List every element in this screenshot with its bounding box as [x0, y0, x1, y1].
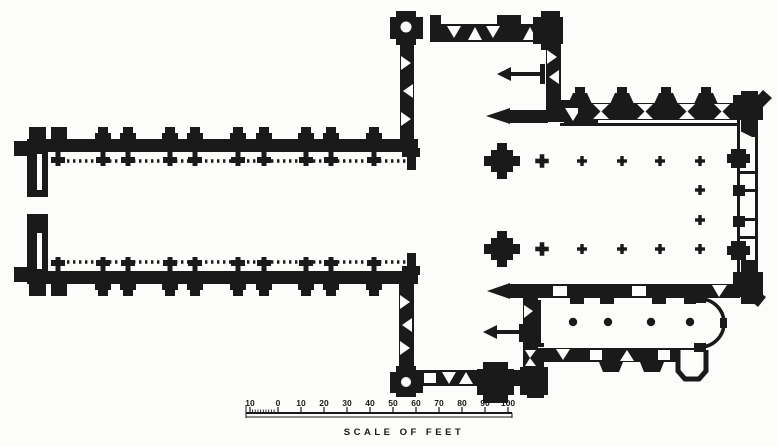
chapel-column: [569, 318, 577, 326]
choir-column: [697, 187, 702, 192]
northwest-stair-turret: [390, 11, 423, 45]
scale-bar: 100102030405060708090100 SCALE OF FEET: [245, 398, 515, 438]
chapel-column: [647, 318, 655, 326]
scale-tick-label: 10: [245, 398, 255, 408]
wall-pier: [257, 260, 271, 266]
scale-tick-label: 40: [365, 398, 375, 408]
south-transept: [390, 284, 548, 403]
south-transept-shape: [477, 369, 514, 395]
wall-pier: [188, 260, 202, 266]
scale-tick-labels: 100102030405060708090100: [245, 398, 515, 408]
apse-respond: [694, 343, 706, 352]
nave-buttress: [95, 127, 111, 141]
altar-mark-arrowhead: [483, 325, 497, 339]
nave-east-pier-north: [407, 143, 416, 170]
nave-south-wall-piers: [51, 257, 381, 273]
nave-buttress: [95, 282, 111, 296]
nave-buttress: [120, 127, 136, 141]
choir-column: [579, 246, 584, 251]
west-wall-passage-north: [37, 154, 42, 190]
choir-column: [657, 246, 662, 251]
nave: [14, 127, 420, 296]
choir-column: [697, 217, 702, 222]
chapel-column: [686, 318, 694, 326]
choir-buttress: [701, 87, 711, 94]
wall-pier: [163, 260, 177, 266]
choir-column: [697, 158, 702, 163]
wall-opening: [632, 286, 646, 296]
crossing-piers: [484, 143, 520, 267]
scale-tick-label: 0: [276, 398, 281, 408]
nave-shape: [29, 283, 46, 296]
north-transept: [430, 11, 598, 124]
choir-column: [697, 246, 702, 251]
south-chapel: [523, 294, 727, 379]
east-window-transom: [737, 236, 758, 239]
nave-buttress: [323, 127, 339, 141]
nave-buttress: [323, 282, 339, 296]
nave-south-buttresses: [95, 282, 382, 296]
choir-buttress: [661, 87, 671, 94]
crossing-pier: [484, 156, 520, 166]
wall-pier: [188, 157, 202, 163]
crossing-pier: [506, 253, 513, 260]
nave-shape: [51, 127, 67, 140]
west-doorway: [25, 197, 50, 214]
east-window-wall-shape: [727, 154, 750, 163]
choir-column: [579, 158, 584, 163]
nave-buttress: [187, 127, 203, 141]
altar-mark-arrowhead: [486, 108, 510, 124]
choir-buttress: [568, 93, 592, 104]
chapel-buttress: [599, 362, 623, 372]
altar-mark-stem: [495, 330, 523, 334]
crossing-pier: [484, 244, 520, 254]
sacristy-annexe: [678, 350, 706, 379]
wall-pier: [600, 296, 614, 304]
east-wall-pier: [733, 216, 745, 227]
chapel-column: [604, 318, 612, 326]
wall-pier: [96, 157, 110, 163]
nave-buttress: [366, 282, 382, 296]
scale-tick-label: 70: [434, 398, 444, 408]
nave-north-wall-piers: [51, 150, 381, 166]
choir-buttress: [575, 87, 585, 94]
crossing-pier: [491, 253, 498, 260]
north-transept-shape: [497, 15, 521, 26]
scale-tick-label: 20: [319, 398, 329, 408]
east-window-transom: [737, 171, 758, 174]
wall-pier: [231, 260, 245, 266]
wall-pier: [299, 260, 313, 266]
choir-buttress: [694, 93, 718, 104]
choir-buttress: [654, 93, 678, 104]
wall-pier: [163, 157, 177, 163]
wall-opening: [553, 286, 567, 296]
altar-marks-shape: [540, 64, 545, 84]
scale-tick-label: 60: [411, 398, 421, 408]
choir-north-wall: [560, 87, 772, 137]
wall-opening: [424, 373, 436, 383]
choir-buttress: [617, 87, 627, 94]
choir-columns: [535, 154, 705, 256]
choir-column: [538, 245, 545, 252]
crossing-pier: [506, 238, 513, 245]
scale-tick-label: 50: [388, 398, 398, 408]
nave-buttress: [298, 127, 314, 141]
wall-opening: [658, 350, 670, 360]
wall-pier: [257, 157, 271, 163]
nave-buttress: [366, 127, 382, 141]
crossing-pier: [506, 165, 513, 172]
choir-column: [657, 158, 662, 163]
choir-column: [538, 157, 545, 164]
nave-buttress: [256, 282, 272, 296]
crossing-pier: [491, 150, 498, 157]
wall-pier: [51, 260, 65, 266]
east-wall-pier: [733, 185, 745, 196]
altar-mark-stem: [508, 110, 548, 123]
scale-caption: SCALE OF FEET: [344, 427, 464, 438]
apse-east-pier: [720, 318, 727, 328]
floor-plan-drawing: 100102030405060708090100 SCALE OF FEET: [0, 0, 777, 446]
crossing-pier: [491, 165, 498, 172]
wall-pier: [121, 260, 135, 266]
altar-mark-stem: [509, 72, 543, 76]
nave-south-wall: [27, 271, 410, 284]
scale-tick-label: 90: [480, 398, 490, 408]
scale-tick-label: 100: [501, 398, 515, 408]
scale-tick-label: 10: [296, 398, 306, 408]
spiral-stair-circle: [401, 377, 411, 387]
north-transept-shape: [430, 15, 441, 42]
nave-buttress: [187, 282, 203, 296]
wall-pier: [367, 260, 381, 266]
wall-pier: [324, 260, 338, 266]
nave-buttress: [298, 282, 314, 296]
wall-pier: [121, 157, 135, 163]
nave-north-buttresses: [95, 127, 382, 141]
wall-pier: [299, 157, 313, 163]
scale-tick-label: 80: [457, 398, 467, 408]
wall-opening: [590, 350, 602, 360]
altar-marks-shape: [519, 324, 523, 342]
chapel-screen: [538, 300, 541, 346]
floor-plan-page: 100102030405060708090100 SCALE OF FEET: [0, 0, 777, 446]
spiral-stair-circle: [401, 22, 412, 33]
nave-buttress: [230, 127, 246, 141]
choir-north-buttresses: [568, 87, 718, 104]
east-window-wall: [727, 119, 766, 307]
chapel-south-wall: [523, 348, 700, 362]
wall-pier: [51, 157, 65, 163]
choir-buttress: [610, 93, 634, 104]
nave-north-wall: [27, 139, 410, 152]
wall-pier: [96, 260, 110, 266]
north-transept-west-wall: [400, 44, 414, 140]
nave-shape: [29, 127, 46, 140]
nave-buttress: [120, 282, 136, 296]
west-buttress-south: [14, 267, 28, 282]
nave-buttress: [256, 127, 272, 141]
nave-buttress: [230, 282, 246, 296]
choir-column: [619, 158, 624, 163]
wall-pier: [324, 157, 338, 163]
west-wall-passage-south: [37, 233, 42, 269]
apse-respond: [694, 294, 706, 303]
altar-mark-arrowhead: [487, 283, 510, 299]
east-window-wall-shape: [727, 246, 750, 255]
wall-pier: [652, 296, 666, 304]
chapel-buttress: [640, 362, 664, 372]
crossing-pier: [506, 150, 513, 157]
crossing-pier: [491, 238, 498, 245]
nave-buttress: [162, 127, 178, 141]
choir-north-inner-face: [560, 123, 738, 126]
nave-shape: [51, 283, 67, 296]
chapel-columns: [569, 318, 694, 326]
choir-column: [619, 246, 624, 251]
wall-pier: [367, 157, 381, 163]
nave-buttress: [162, 282, 178, 296]
scale-tick-label: 30: [342, 398, 352, 408]
east-window-wall-shape: [737, 119, 740, 289]
wall-pier: [231, 157, 245, 163]
west-buttress-north: [14, 141, 28, 156]
nave-east-pier-south: [407, 253, 416, 280]
wall-pier: [570, 296, 584, 304]
altar-mark-arrowhead: [497, 67, 511, 81]
